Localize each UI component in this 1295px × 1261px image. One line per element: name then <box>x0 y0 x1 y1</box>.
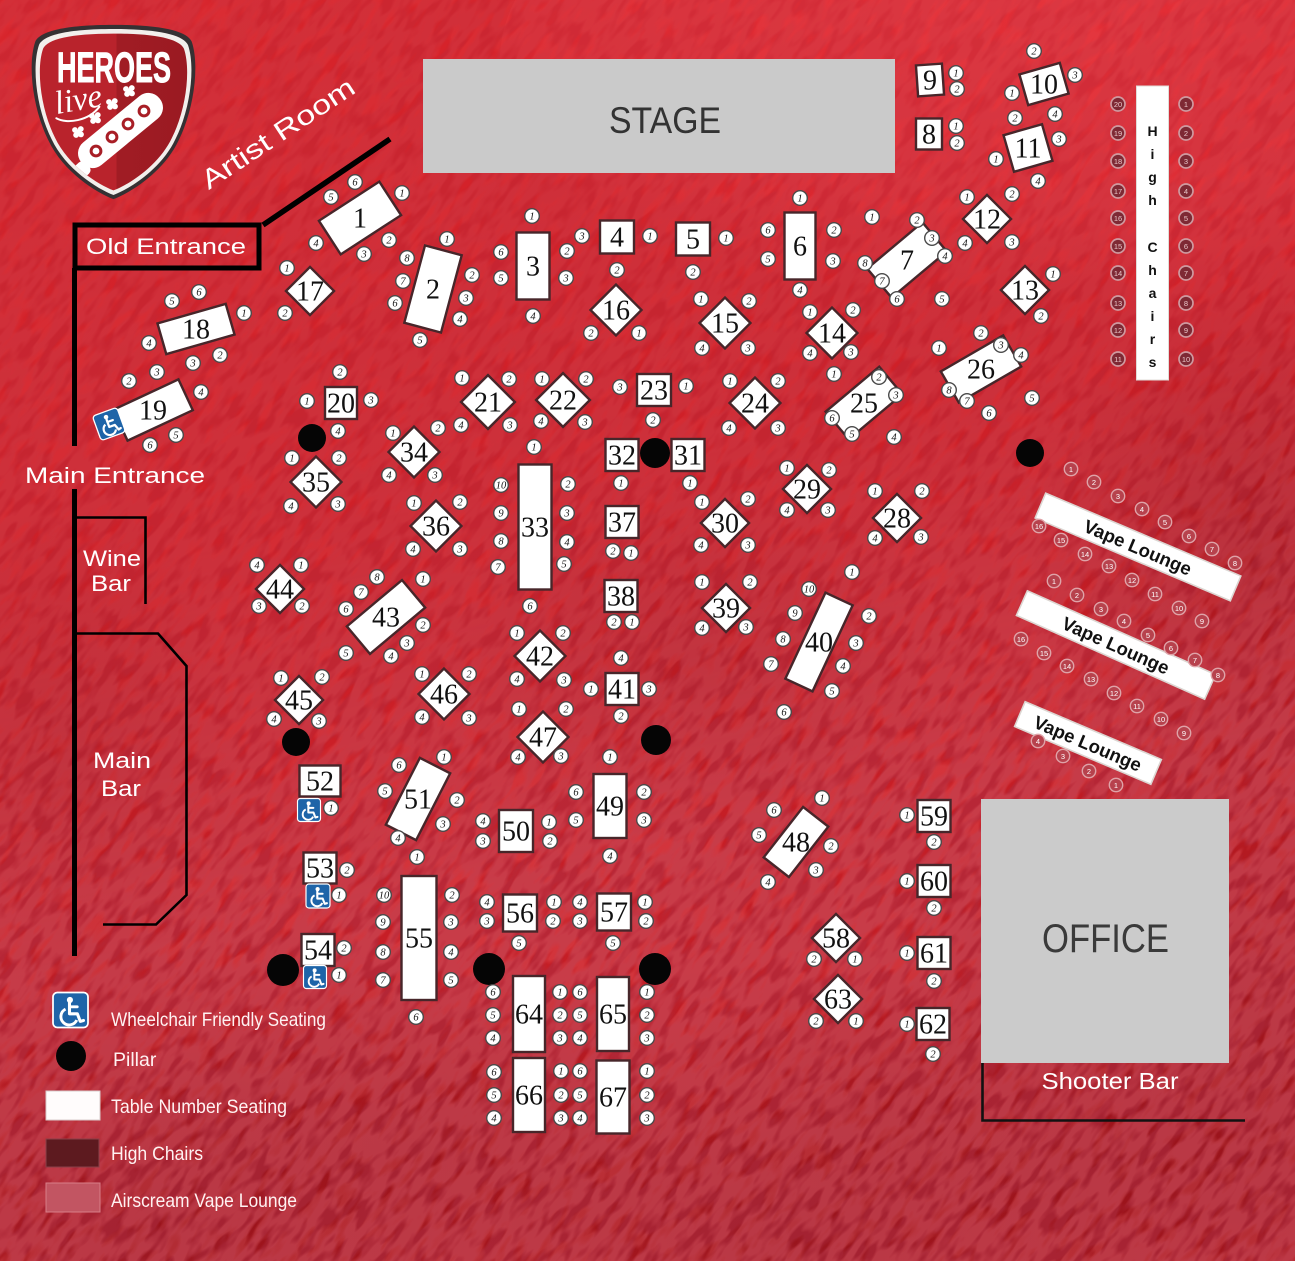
svg-text:2: 2 <box>746 297 752 308</box>
svg-text:8: 8 <box>922 120 936 151</box>
svg-text:3: 3 <box>506 421 512 432</box>
svg-text:47: 47 <box>529 723 557 754</box>
svg-text:2: 2 <box>611 618 617 629</box>
svg-text:1: 1 <box>629 618 634 629</box>
svg-text:2: 2 <box>506 375 512 386</box>
svg-text:2: 2 <box>126 377 132 388</box>
svg-text:3: 3 <box>892 391 898 402</box>
svg-text:7: 7 <box>768 660 774 671</box>
svg-text:1: 1 <box>516 705 521 716</box>
svg-text:2: 2 <box>690 268 696 279</box>
svg-text:1: 1 <box>419 670 424 681</box>
svg-text:6: 6 <box>1184 242 1188 251</box>
svg-text:4: 4 <box>872 534 878 545</box>
svg-text:2: 2 <box>564 247 570 258</box>
svg-text:3: 3 <box>562 274 568 285</box>
svg-text:1: 1 <box>904 1020 909 1031</box>
svg-text:22: 22 <box>549 386 577 417</box>
svg-text:2: 2 <box>341 944 347 955</box>
svg-text:13: 13 <box>1114 299 1122 308</box>
svg-text:4: 4 <box>530 312 536 323</box>
svg-text:2: 2 <box>1038 312 1044 323</box>
svg-text:38: 38 <box>607 582 635 613</box>
svg-text:2: 2 <box>454 796 460 807</box>
svg-text:11: 11 <box>1151 590 1159 599</box>
svg-text:15: 15 <box>1057 536 1065 545</box>
svg-text:1: 1 <box>993 155 998 166</box>
svg-text:2: 2 <box>811 955 817 966</box>
svg-text:2: 2 <box>747 578 753 589</box>
svg-text:8: 8 <box>1233 559 1237 568</box>
svg-text:5: 5 <box>849 430 854 441</box>
svg-text:4: 4 <box>699 344 705 355</box>
svg-text:4: 4 <box>410 545 416 556</box>
svg-text:2: 2 <box>282 309 288 320</box>
svg-text:1: 1 <box>441 753 446 764</box>
svg-text:Pillar: Pillar <box>113 1049 157 1071</box>
svg-text:3: 3 <box>640 816 646 827</box>
svg-text:62: 62 <box>919 1010 947 1041</box>
svg-text:2: 2 <box>420 621 426 632</box>
svg-text:3: 3 <box>581 418 587 429</box>
svg-text:5: 5 <box>1029 394 1034 405</box>
svg-text:1: 1 <box>284 264 289 275</box>
svg-text:8: 8 <box>380 948 386 959</box>
svg-text:1: 1 <box>628 549 633 560</box>
svg-text:7: 7 <box>380 976 386 987</box>
svg-text:6: 6 <box>793 232 807 263</box>
svg-text:3: 3 <box>557 1114 563 1125</box>
svg-text:5: 5 <box>1163 518 1167 527</box>
svg-text:54: 54 <box>304 936 332 967</box>
svg-text:1: 1 <box>636 329 641 340</box>
svg-text:48: 48 <box>782 828 810 859</box>
svg-text:1: 1 <box>444 235 449 246</box>
svg-text:67: 67 <box>599 1083 627 1114</box>
svg-text:1: 1 <box>539 375 544 386</box>
svg-text:1: 1 <box>784 464 789 475</box>
svg-text:4: 4 <box>1140 505 1144 514</box>
svg-text:4: 4 <box>538 417 544 428</box>
svg-text:1: 1 <box>807 308 812 319</box>
svg-text:7: 7 <box>879 277 885 288</box>
svg-text:2: 2 <box>547 837 553 848</box>
svg-text:3: 3 <box>997 341 1003 352</box>
svg-text:4: 4 <box>618 654 624 665</box>
svg-text:Wine: Wine <box>83 546 141 571</box>
svg-text:4: 4 <box>807 349 813 360</box>
svg-text:H: H <box>1147 123 1157 139</box>
svg-text:34: 34 <box>400 438 428 469</box>
svg-text:3: 3 <box>643 1034 649 1045</box>
svg-text:1: 1 <box>727 377 732 388</box>
svg-text:1: 1 <box>304 397 309 408</box>
svg-text:4: 4 <box>564 538 570 549</box>
svg-text:1: 1 <box>588 685 593 696</box>
svg-text:2: 2 <box>930 1050 936 1061</box>
svg-text:3: 3 <box>616 383 622 394</box>
svg-text:5: 5 <box>939 295 944 306</box>
svg-text:Bar: Bar <box>101 776 141 801</box>
svg-text:14: 14 <box>1114 269 1122 278</box>
svg-text:Airscream Vape Lounge: Airscream Vape Lounge <box>111 1190 297 1212</box>
svg-text:17: 17 <box>296 277 324 308</box>
svg-text:6: 6 <box>147 441 153 452</box>
svg-text:1: 1 <box>852 955 857 966</box>
svg-text:3: 3 <box>456 545 462 556</box>
svg-text:6: 6 <box>413 1013 419 1024</box>
svg-text:6: 6 <box>396 761 402 772</box>
svg-text:1: 1 <box>618 479 623 490</box>
svg-text:2: 2 <box>644 1091 650 1102</box>
svg-text:4: 4 <box>1018 351 1024 362</box>
svg-text:3: 3 <box>1071 71 1077 82</box>
svg-text:6: 6 <box>577 1067 583 1078</box>
svg-text:42: 42 <box>526 642 554 673</box>
svg-text:4: 4 <box>458 421 464 432</box>
svg-text:3: 3 <box>1184 157 1188 166</box>
svg-text:3: 3 <box>462 294 468 305</box>
svg-text:Wheelchair Friendly Seating: Wheelchair Friendly Seating <box>111 1009 326 1031</box>
svg-text:5: 5 <box>561 560 566 571</box>
svg-text:3: 3 <box>1061 752 1065 761</box>
svg-text:2: 2 <box>850 306 856 317</box>
svg-text:5: 5 <box>573 816 578 827</box>
svg-text:1: 1 <box>390 429 395 440</box>
svg-text:2: 2 <box>914 216 920 227</box>
svg-text:2: 2 <box>557 1011 563 1022</box>
svg-text:2: 2 <box>558 1091 564 1102</box>
svg-text:4: 4 <box>577 898 583 909</box>
svg-text:8: 8 <box>374 573 380 584</box>
svg-text:2: 2 <box>386 236 392 247</box>
svg-text:8: 8 <box>946 386 952 397</box>
svg-text:16: 16 <box>1114 214 1122 223</box>
svg-text:3: 3 <box>189 359 195 370</box>
svg-text:10: 10 <box>496 481 507 492</box>
svg-text:10: 10 <box>1175 604 1183 613</box>
svg-text:53: 53 <box>306 854 334 885</box>
svg-text:Main: Main <box>93 748 151 773</box>
svg-text:10: 10 <box>1182 355 1190 364</box>
svg-text:4: 4 <box>1184 187 1188 196</box>
svg-text:a: a <box>1149 285 1157 301</box>
svg-text:66: 66 <box>515 1081 543 1112</box>
svg-text:1: 1 <box>644 1067 649 1078</box>
svg-text:h: h <box>1148 262 1157 278</box>
svg-text:1: 1 <box>872 487 877 498</box>
svg-text:3: 3 <box>367 396 373 407</box>
svg-text:35: 35 <box>302 468 330 499</box>
svg-text:6: 6 <box>894 295 900 306</box>
svg-text:Main Entrance: Main Entrance <box>25 463 205 488</box>
svg-text:3: 3 <box>479 837 485 848</box>
svg-text:19: 19 <box>139 396 167 427</box>
svg-text:1: 1 <box>420 575 425 586</box>
svg-text:13: 13 <box>1087 675 1095 684</box>
svg-text:4: 4 <box>784 506 790 517</box>
svg-text:1: 1 <box>1050 270 1055 281</box>
svg-text:6: 6 <box>765 226 771 237</box>
svg-text:5: 5 <box>173 431 178 442</box>
svg-text:4: 4 <box>271 715 277 726</box>
svg-text:2: 2 <box>1092 478 1096 487</box>
svg-text:3: 3 <box>556 1034 562 1045</box>
svg-text:5: 5 <box>491 1091 496 1102</box>
svg-text:19: 19 <box>1114 129 1122 138</box>
svg-text:1: 1 <box>399 189 404 200</box>
svg-text:7: 7 <box>1184 269 1188 278</box>
svg-text:1: 1 <box>289 454 294 465</box>
svg-text:4: 4 <box>198 388 204 399</box>
svg-text:17: 17 <box>1114 187 1122 196</box>
svg-text:2: 2 <box>614 266 620 277</box>
svg-text:2: 2 <box>775 377 781 388</box>
svg-text:2: 2 <box>931 838 937 849</box>
svg-text:1: 1 <box>414 853 419 864</box>
svg-text:1: 1 <box>514 629 519 640</box>
svg-text:5: 5 <box>765 255 770 266</box>
svg-text:Bar: Bar <box>91 571 131 596</box>
svg-text:3: 3 <box>439 820 445 831</box>
svg-text:1: 1 <box>869 213 874 224</box>
svg-text:2: 2 <box>610 547 616 558</box>
svg-text:1: 1 <box>328 804 333 815</box>
svg-text:Old Entrance: Old Entrance <box>86 234 246 259</box>
svg-text:4: 4 <box>577 1114 583 1125</box>
svg-text:5: 5 <box>498 274 503 285</box>
svg-text:28: 28 <box>883 504 911 535</box>
svg-text:14: 14 <box>1063 662 1071 671</box>
svg-text:57: 57 <box>600 898 628 929</box>
svg-text:3: 3 <box>847 348 853 359</box>
svg-text:1: 1 <box>551 898 556 909</box>
svg-text:2: 2 <box>828 842 834 853</box>
svg-text:12: 12 <box>973 205 1001 236</box>
svg-text:3: 3 <box>447 918 453 929</box>
svg-text:1: 1 <box>644 988 649 999</box>
svg-text:1: 1 <box>904 949 909 960</box>
svg-text:2: 2 <box>426 275 440 306</box>
svg-text:4: 4 <box>515 753 521 764</box>
svg-text:4: 4 <box>254 561 260 572</box>
svg-text:7: 7 <box>964 397 970 408</box>
svg-text:2: 2 <box>831 226 837 237</box>
svg-text:8: 8 <box>404 254 410 265</box>
svg-text:20: 20 <box>1114 100 1122 109</box>
svg-text:2: 2 <box>876 373 882 384</box>
svg-text:1: 1 <box>531 443 536 454</box>
svg-text:1: 1 <box>904 811 909 822</box>
svg-text:9: 9 <box>1184 326 1188 335</box>
svg-text:2: 2 <box>319 673 325 684</box>
svg-text:55: 55 <box>405 924 433 955</box>
svg-text:43: 43 <box>372 603 400 634</box>
svg-text:1: 1 <box>278 674 283 685</box>
svg-text:2: 2 <box>643 917 649 928</box>
svg-text:1: 1 <box>529 212 534 223</box>
svg-text:1: 1 <box>853 1017 858 1028</box>
svg-text:2: 2 <box>588 329 594 340</box>
svg-text:1: 1 <box>1184 100 1188 109</box>
svg-text:1: 1 <box>683 382 688 393</box>
svg-text:49: 49 <box>596 792 624 823</box>
svg-text:5: 5 <box>448 976 453 987</box>
svg-text:1: 1 <box>353 204 367 235</box>
svg-text:12: 12 <box>1128 576 1136 585</box>
svg-text:1: 1 <box>607 753 612 764</box>
svg-text:3: 3 <box>431 471 437 482</box>
svg-text:4: 4 <box>699 624 705 635</box>
svg-text:5: 5 <box>577 1091 582 1102</box>
svg-text:10: 10 <box>379 891 390 902</box>
svg-text:9: 9 <box>792 609 798 620</box>
svg-text:2: 2 <box>931 977 937 988</box>
svg-text:4: 4 <box>726 424 732 435</box>
svg-text:4: 4 <box>395 834 401 845</box>
svg-text:2: 2 <box>866 612 872 623</box>
svg-text:6: 6 <box>573 788 579 799</box>
svg-text:8: 8 <box>1184 299 1188 308</box>
svg-text:5: 5 <box>756 831 761 842</box>
svg-text:6: 6 <box>392 299 398 310</box>
svg-text:5: 5 <box>382 787 387 798</box>
svg-text:3: 3 <box>483 917 489 928</box>
svg-text:7: 7 <box>1210 545 1214 554</box>
svg-text:52: 52 <box>306 767 334 798</box>
svg-text:3: 3 <box>315 717 321 728</box>
svg-text:2: 2 <box>1087 767 1091 776</box>
svg-text:1: 1 <box>558 1067 563 1078</box>
svg-text:2: 2 <box>931 904 937 915</box>
svg-text:36: 36 <box>422 512 450 543</box>
svg-text:3: 3 <box>928 234 934 245</box>
svg-text:2: 2 <box>919 487 925 498</box>
svg-text:4: 4 <box>388 652 394 663</box>
svg-text:1: 1 <box>936 344 941 355</box>
svg-text:2: 2 <box>560 629 566 640</box>
svg-text:9: 9 <box>923 66 937 97</box>
svg-text:6: 6 <box>986 409 992 420</box>
svg-text:1: 1 <box>819 794 824 805</box>
svg-text:7: 7 <box>1193 656 1197 665</box>
svg-text:46: 46 <box>430 680 458 711</box>
svg-text:4: 4 <box>484 898 490 909</box>
svg-text:45: 45 <box>285 686 313 717</box>
svg-text:8: 8 <box>862 259 868 270</box>
svg-text:4: 4 <box>146 339 152 350</box>
svg-text:1: 1 <box>1069 465 1073 474</box>
svg-text:1: 1 <box>953 122 958 133</box>
svg-text:3: 3 <box>742 623 748 634</box>
svg-text:2: 2 <box>826 466 832 477</box>
svg-text:7: 7 <box>358 588 364 599</box>
svg-text:6: 6 <box>343 605 349 616</box>
svg-text:6: 6 <box>829 414 835 425</box>
svg-text:4: 4 <box>797 286 803 297</box>
svg-text:12: 12 <box>1114 326 1122 335</box>
svg-text:4: 4 <box>1035 177 1041 188</box>
svg-text:16: 16 <box>1035 522 1043 531</box>
svg-text:4: 4 <box>1122 617 1126 626</box>
svg-text:4: 4 <box>419 713 425 724</box>
svg-text:2: 2 <box>644 1011 650 1022</box>
svg-text:1: 1 <box>1009 89 1014 100</box>
svg-text:5: 5 <box>516 939 521 950</box>
svg-text:4: 4 <box>480 817 486 828</box>
svg-text:OFFICE: OFFICE <box>1042 917 1169 961</box>
svg-text:1: 1 <box>336 891 341 902</box>
svg-text:Table Number Seating: Table Number Seating <box>111 1096 287 1118</box>
svg-text:61: 61 <box>920 939 948 970</box>
svg-text:4: 4 <box>335 427 341 438</box>
svg-text:1: 1 <box>699 498 704 509</box>
svg-text:High Chairs: High Chairs <box>111 1143 203 1165</box>
svg-text:2: 2 <box>1009 190 1015 201</box>
svg-text:3: 3 <box>829 257 835 268</box>
svg-text:37: 37 <box>608 508 636 539</box>
svg-text:3: 3 <box>334 500 340 511</box>
svg-text:1: 1 <box>1114 781 1118 790</box>
svg-text:4: 4 <box>891 433 897 444</box>
svg-text:h: h <box>1148 192 1157 208</box>
svg-text:5: 5 <box>1146 631 1150 640</box>
svg-text:4: 4 <box>448 948 454 959</box>
svg-text:23: 23 <box>640 376 668 407</box>
svg-text:3: 3 <box>812 866 818 877</box>
svg-text:2: 2 <box>745 495 751 506</box>
svg-text:4: 4 <box>840 662 846 673</box>
svg-text:41: 41 <box>608 675 636 706</box>
svg-text:6: 6 <box>1169 644 1173 653</box>
svg-text:33: 33 <box>521 513 549 544</box>
svg-text:13: 13 <box>1105 562 1113 571</box>
svg-text:16: 16 <box>602 296 630 327</box>
svg-text:2: 2 <box>641 788 647 799</box>
svg-text:5: 5 <box>686 225 700 256</box>
svg-text:9: 9 <box>380 918 386 929</box>
svg-text:2: 2 <box>1075 591 1079 600</box>
svg-text:4: 4 <box>942 252 948 263</box>
svg-text:5: 5 <box>829 687 834 698</box>
svg-text:5: 5 <box>1184 214 1188 223</box>
svg-text:4: 4 <box>313 239 319 250</box>
svg-text:3: 3 <box>560 676 566 687</box>
svg-text:30: 30 <box>711 509 739 540</box>
svg-text:9: 9 <box>498 509 504 520</box>
svg-text:2: 2 <box>1031 47 1037 58</box>
svg-text:5: 5 <box>343 649 348 660</box>
svg-text:2: 2 <box>469 271 475 282</box>
svg-text:5: 5 <box>490 1011 495 1022</box>
svg-text:26: 26 <box>967 355 995 386</box>
svg-text:1: 1 <box>723 234 728 245</box>
svg-text:24: 24 <box>741 389 769 420</box>
svg-text:i: i <box>1151 146 1155 162</box>
svg-text:8: 8 <box>780 635 786 646</box>
svg-text:4: 4 <box>765 878 771 889</box>
svg-text:3: 3 <box>1055 135 1061 146</box>
svg-text:3: 3 <box>255 602 261 613</box>
svg-text:4: 4 <box>610 223 624 254</box>
svg-text:12: 12 <box>1110 689 1118 698</box>
svg-text:6: 6 <box>491 1068 497 1079</box>
svg-text:1: 1 <box>647 232 652 243</box>
svg-text:3: 3 <box>852 639 858 650</box>
svg-text:4: 4 <box>698 541 704 552</box>
svg-text:3: 3 <box>643 1114 649 1125</box>
svg-text:11: 11 <box>1015 134 1042 165</box>
